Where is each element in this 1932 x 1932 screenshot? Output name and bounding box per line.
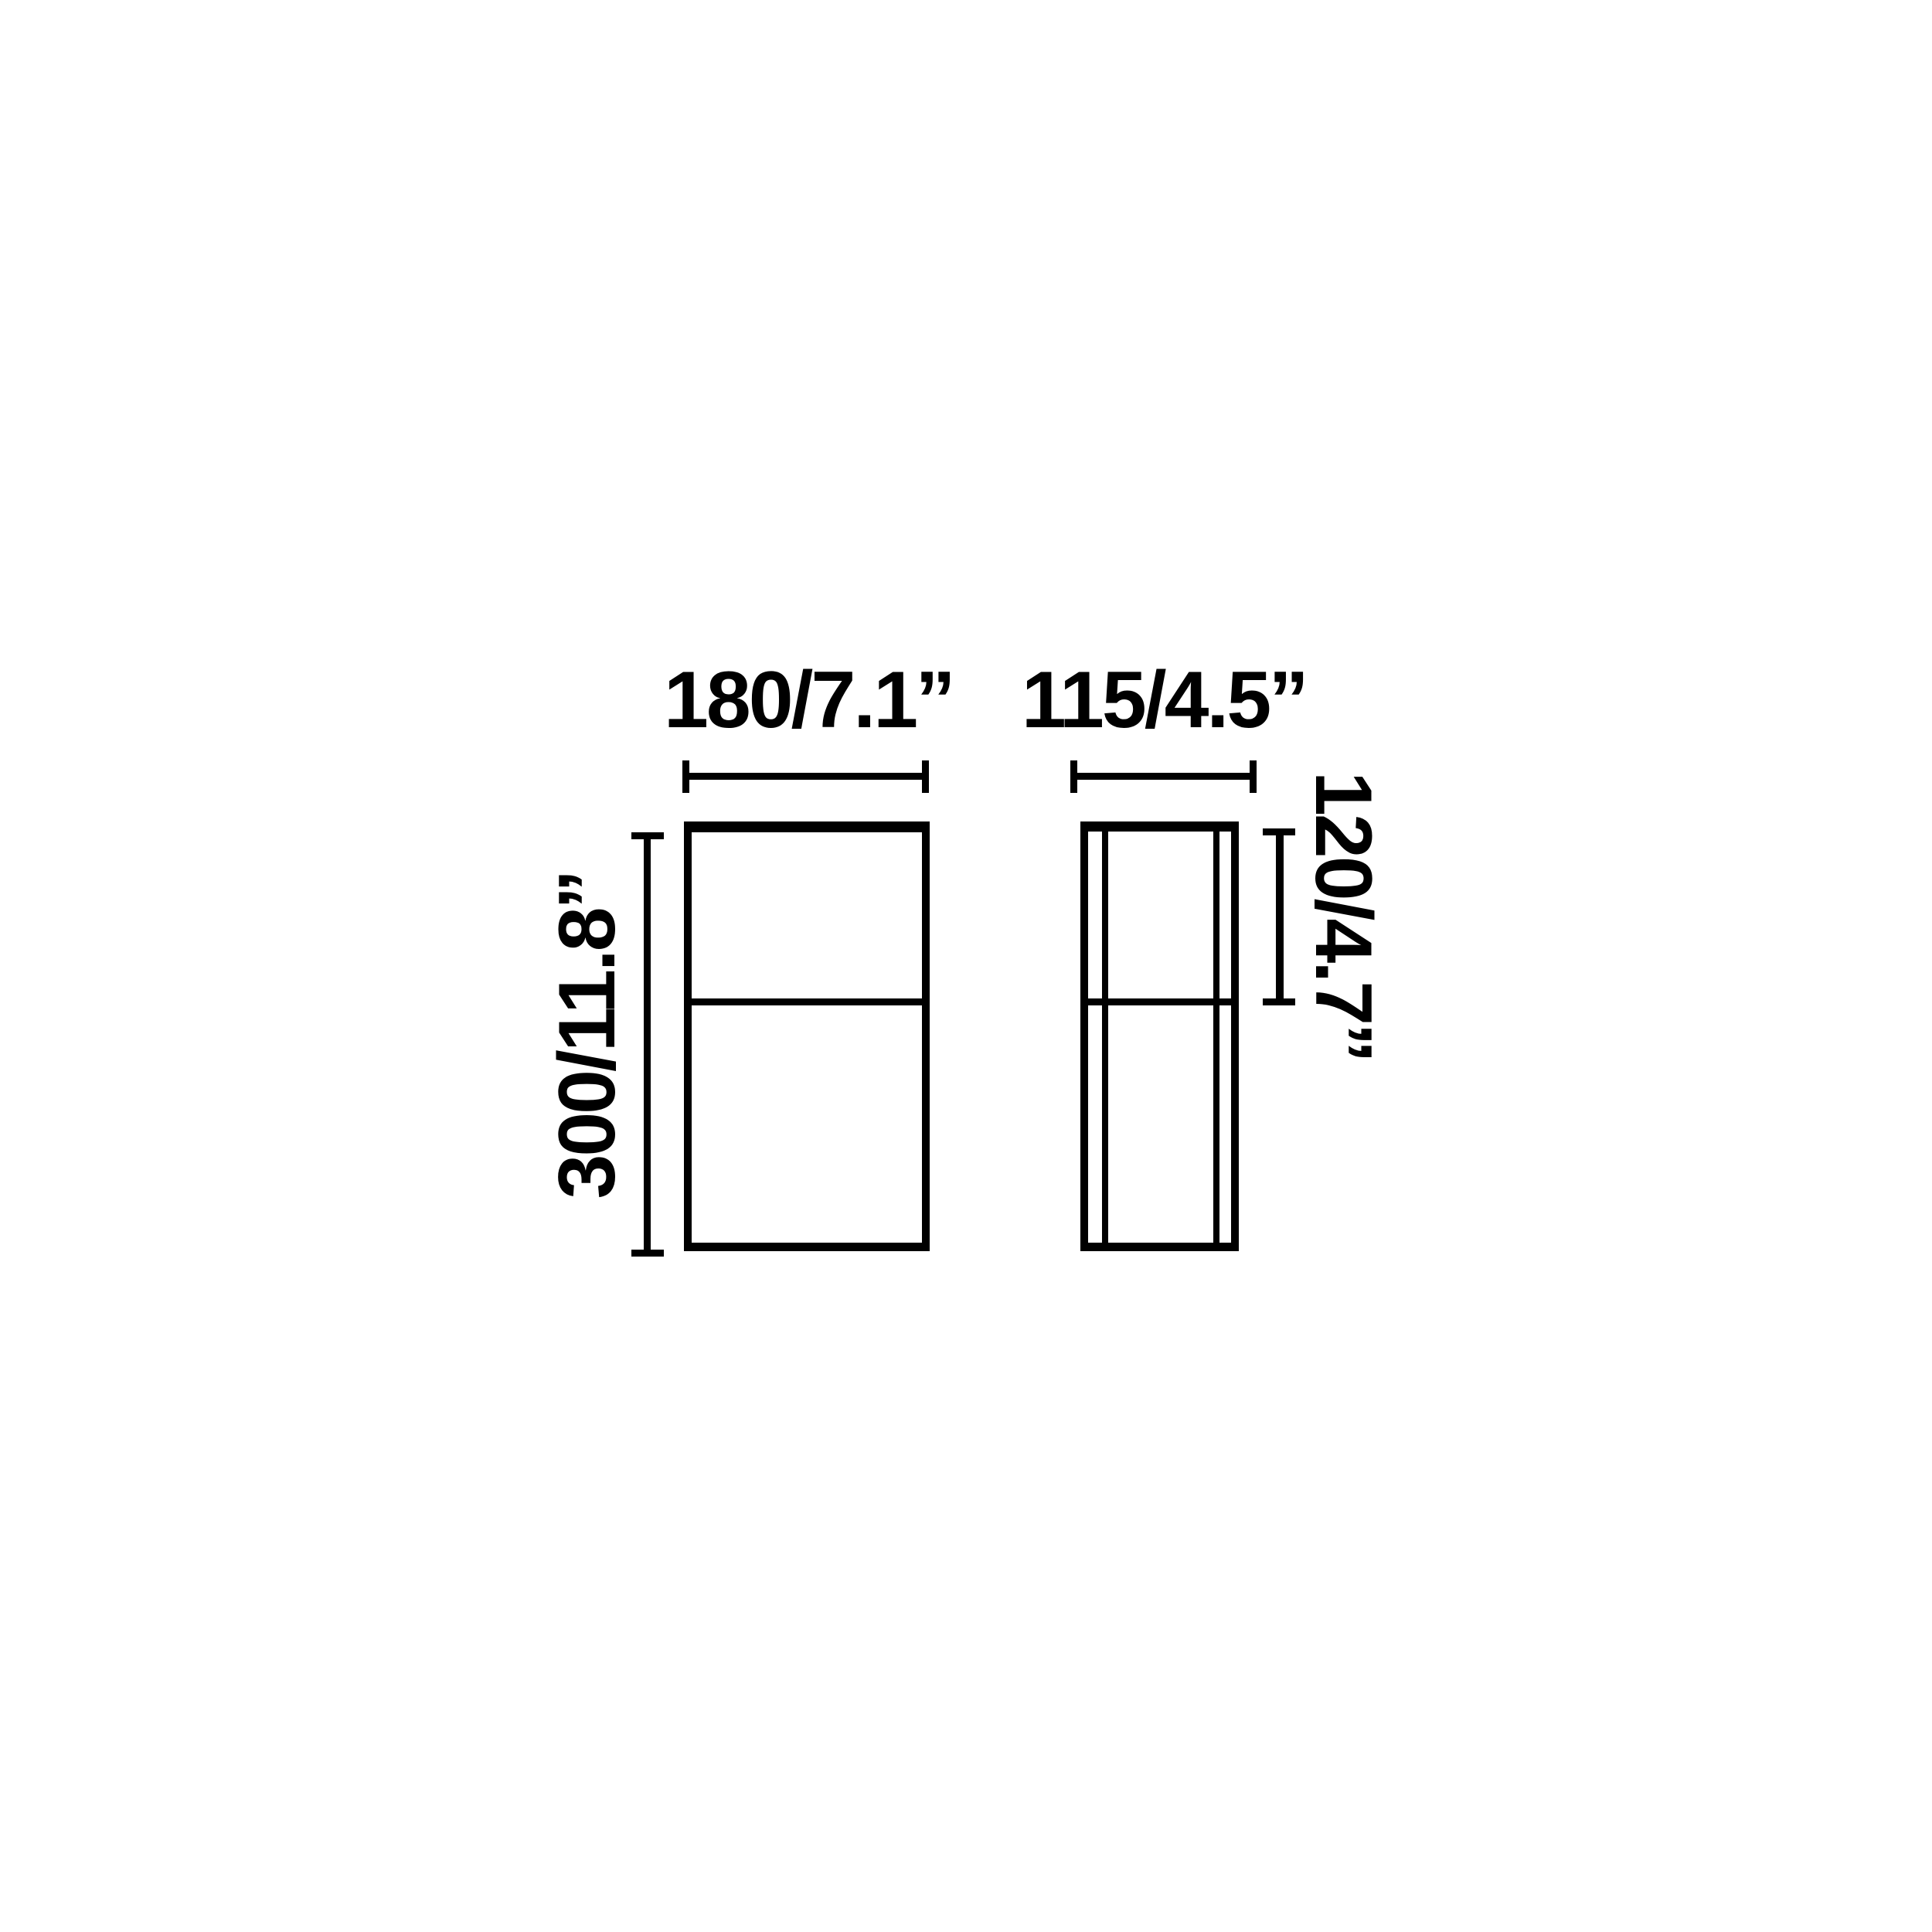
side-view-divider-line bbox=[1080, 998, 1239, 1005]
depth-dimension-tick-right bbox=[1250, 760, 1257, 793]
upper-height-dimension-tick-top bbox=[1263, 828, 1295, 835]
height-dimension-line bbox=[644, 832, 651, 1257]
height-dimension-label: 300/11.8’’ bbox=[547, 872, 628, 1199]
width-dimension-tick-right bbox=[922, 760, 929, 793]
upper-height-dimension-label: 120/4.7’’ bbox=[1303, 771, 1383, 1060]
upper-height-dimension-tick-bottom bbox=[1263, 998, 1295, 1005]
depth-dimension-tick-left bbox=[1070, 760, 1077, 793]
side-view-inner-line-left bbox=[1102, 832, 1108, 1243]
width-dimension-tick-left bbox=[682, 760, 689, 793]
dimension-drawing: 180/7.1’’ 115/4.5’’ 300/11.8’’ 120/4.7’’ bbox=[0, 0, 1932, 1932]
width-dimension-line bbox=[682, 773, 929, 780]
upper-height-dimension-line bbox=[1276, 828, 1284, 1005]
height-dimension-tick-top bbox=[631, 832, 664, 839]
depth-dimension-label: 115/4.5’’ bbox=[1022, 660, 1306, 740]
height-dimension-tick-bottom bbox=[631, 1250, 664, 1257]
front-view-divider-line bbox=[684, 998, 930, 1005]
front-view-outline bbox=[684, 821, 930, 1251]
width-dimension-label: 180/7.1’’ bbox=[664, 660, 953, 740]
depth-dimension-line bbox=[1070, 773, 1257, 780]
side-view-inner-line-right bbox=[1213, 832, 1219, 1243]
